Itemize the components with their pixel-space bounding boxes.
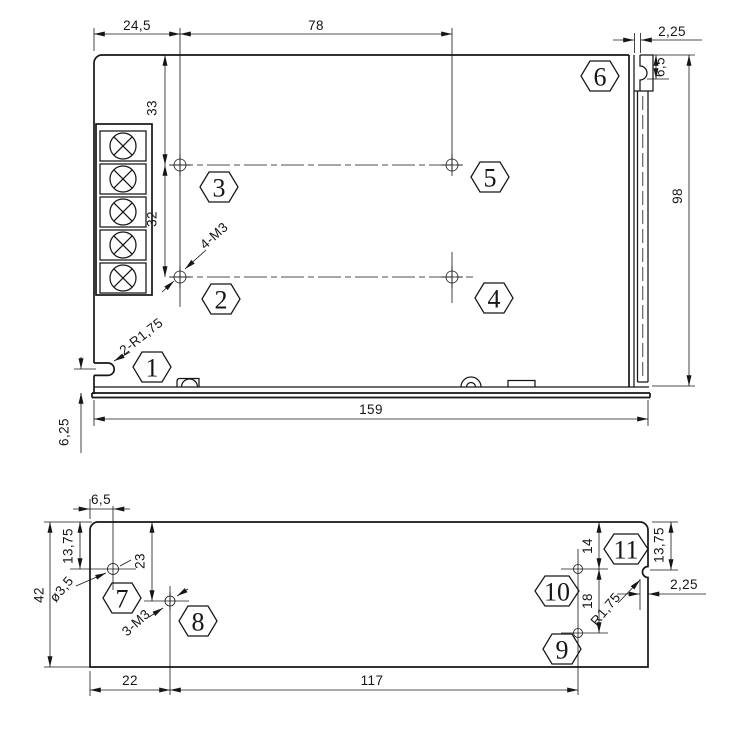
top-view: 24,5 78 2,25 6,5 98 bbox=[57, 18, 703, 453]
label-4-m3: 4-M3 bbox=[162, 219, 231, 292]
screw-icon bbox=[110, 232, 136, 258]
balloon-number: 4 bbox=[488, 285, 501, 314]
dim-text-body-height: 98 bbox=[670, 188, 685, 204]
dim-24-5: 24,5 bbox=[94, 18, 180, 51]
balloon-1: 1 bbox=[133, 352, 171, 383]
top-view-construction-lines bbox=[170, 28, 473, 307]
terminal-block-outline bbox=[96, 124, 152, 295]
dim-text-hole7-offset-y: 13,75 bbox=[61, 528, 76, 564]
dim-text-rail-slot-depth: 6,5 bbox=[653, 57, 668, 77]
dim-32: 32 bbox=[145, 165, 166, 277]
dim-text-notch-offset-y: 13,75 bbox=[652, 527, 667, 563]
dim-2-25-bottom: 2,25 bbox=[617, 577, 706, 610]
technical-drawing-svg: 24,5 78 2,25 6,5 98 bbox=[0, 0, 730, 729]
dim-117: 117 bbox=[170, 673, 578, 690]
bottom-view-balloons: 7 8 9 10 11 bbox=[103, 534, 648, 665]
screw-icon bbox=[110, 199, 136, 225]
mounting-rail bbox=[634, 55, 653, 382]
balloon-number: 2 bbox=[215, 286, 228, 315]
terminal-block bbox=[96, 124, 152, 295]
balloon-10: 10 bbox=[535, 576, 579, 607]
dim-33: 33 bbox=[145, 55, 166, 165]
balloon-number: 8 bbox=[192, 608, 205, 637]
balloon-6: 6 bbox=[581, 61, 619, 92]
dim-2-25-top: 2,25 bbox=[613, 24, 702, 53]
bottom-view-holes bbox=[108, 564, 583, 638]
grommet-half-circle bbox=[461, 377, 481, 387]
bottom-flange-features bbox=[177, 377, 535, 387]
balloon-number: 1 bbox=[146, 354, 159, 383]
dim-text-hole8-offset-y: 23 bbox=[133, 553, 148, 569]
dim-6-5-top: 6,5 bbox=[647, 55, 669, 79]
balloon-number: 6 bbox=[594, 63, 607, 92]
dim-text-body-length: 159 bbox=[359, 402, 383, 417]
dim-text-hole8-offset-x: 22 bbox=[122, 673, 138, 688]
label-r1-75: R1,75 bbox=[588, 580, 640, 628]
dim-text-hole-spacing-y: 18 bbox=[580, 593, 595, 609]
dim-6-25: 6,25 bbox=[57, 357, 97, 453]
screw-icon bbox=[110, 133, 136, 159]
left-edge-with-notch bbox=[94, 63, 114, 394]
dim-text-hole-offset-x: 24,5 bbox=[123, 18, 151, 33]
top-view-outline bbox=[92, 55, 650, 398]
dim-text-hole-span-x: 78 bbox=[308, 18, 324, 33]
balloon-9: 9 bbox=[543, 634, 581, 665]
dim-78: 78 bbox=[180, 18, 452, 34]
balloon-number: 7 bbox=[116, 585, 129, 614]
label-3-m3: 3-M3 bbox=[119, 589, 188, 639]
hole-3 bbox=[169, 154, 191, 176]
top-view-balloons: 1 2 3 4 5 6 bbox=[133, 61, 619, 383]
dim-text-rail-slot-width: 2,25 bbox=[658, 24, 686, 39]
dim-text-hole-span-x: 117 bbox=[361, 673, 384, 688]
terminal-screw-icons bbox=[110, 133, 136, 291]
bottom-view: 42 6,5 13,75 23 ø3,5 bbox=[32, 492, 707, 696]
dim-text-notch-depth: 2,25 bbox=[670, 577, 698, 592]
dim-text-hole10-offset-y: 14 bbox=[580, 538, 595, 554]
dim-13-75-right: 13,75 bbox=[650, 522, 678, 570]
dim-text-notch-offset: 6,25 bbox=[57, 418, 72, 446]
dim-6-5-bottom: 6,5 bbox=[73, 492, 130, 519]
dim-159: 159 bbox=[94, 400, 648, 426]
rect-tab bbox=[508, 381, 535, 388]
dim-text-hole-row-top: 33 bbox=[145, 100, 160, 116]
bottom-flange-edge bbox=[92, 393, 650, 398]
balloon-number: 11 bbox=[613, 536, 638, 565]
dim-text-hole7-offset-x: 6,5 bbox=[91, 492, 111, 507]
dim-13-75-left: 13,75 bbox=[61, 522, 81, 569]
balloon-number: 9 bbox=[556, 636, 569, 665]
balloon-8: 8 bbox=[179, 606, 217, 637]
hole-5 bbox=[441, 154, 463, 176]
latch-tab-arc bbox=[182, 379, 198, 387]
balloon-2: 2 bbox=[202, 284, 240, 315]
hole-2 bbox=[169, 266, 191, 288]
label-text-mounting-holes: 4-M3 bbox=[197, 219, 231, 252]
balloon-4: 4 bbox=[475, 283, 513, 314]
dim-text-hole-row-spacing: 32 bbox=[145, 211, 160, 227]
balloon-number: 10 bbox=[544, 578, 570, 607]
dim-98: 98 bbox=[652, 55, 695, 386]
drawing-canvas: 24,5 78 2,25 6,5 98 bbox=[0, 0, 730, 729]
dim-text-panel-height: 42 bbox=[32, 587, 47, 603]
balloon-3: 3 bbox=[200, 172, 238, 203]
balloon-5: 5 bbox=[471, 162, 509, 193]
balloon-number: 3 bbox=[213, 174, 226, 203]
balloon-7: 7 bbox=[103, 583, 141, 614]
rail-hook-profile bbox=[634, 55, 653, 91]
screw-icon bbox=[110, 166, 136, 192]
balloon-number: 5 bbox=[484, 164, 497, 193]
top-edge bbox=[94, 55, 629, 63]
screw-icon bbox=[110, 265, 136, 291]
label-text-hole-diameter: ø3,5 bbox=[47, 573, 77, 605]
hole-4 bbox=[441, 266, 463, 288]
dim-22: 22 bbox=[90, 671, 170, 696]
balloon-11: 11 bbox=[604, 534, 648, 565]
dim-14: 14 bbox=[580, 522, 599, 569]
